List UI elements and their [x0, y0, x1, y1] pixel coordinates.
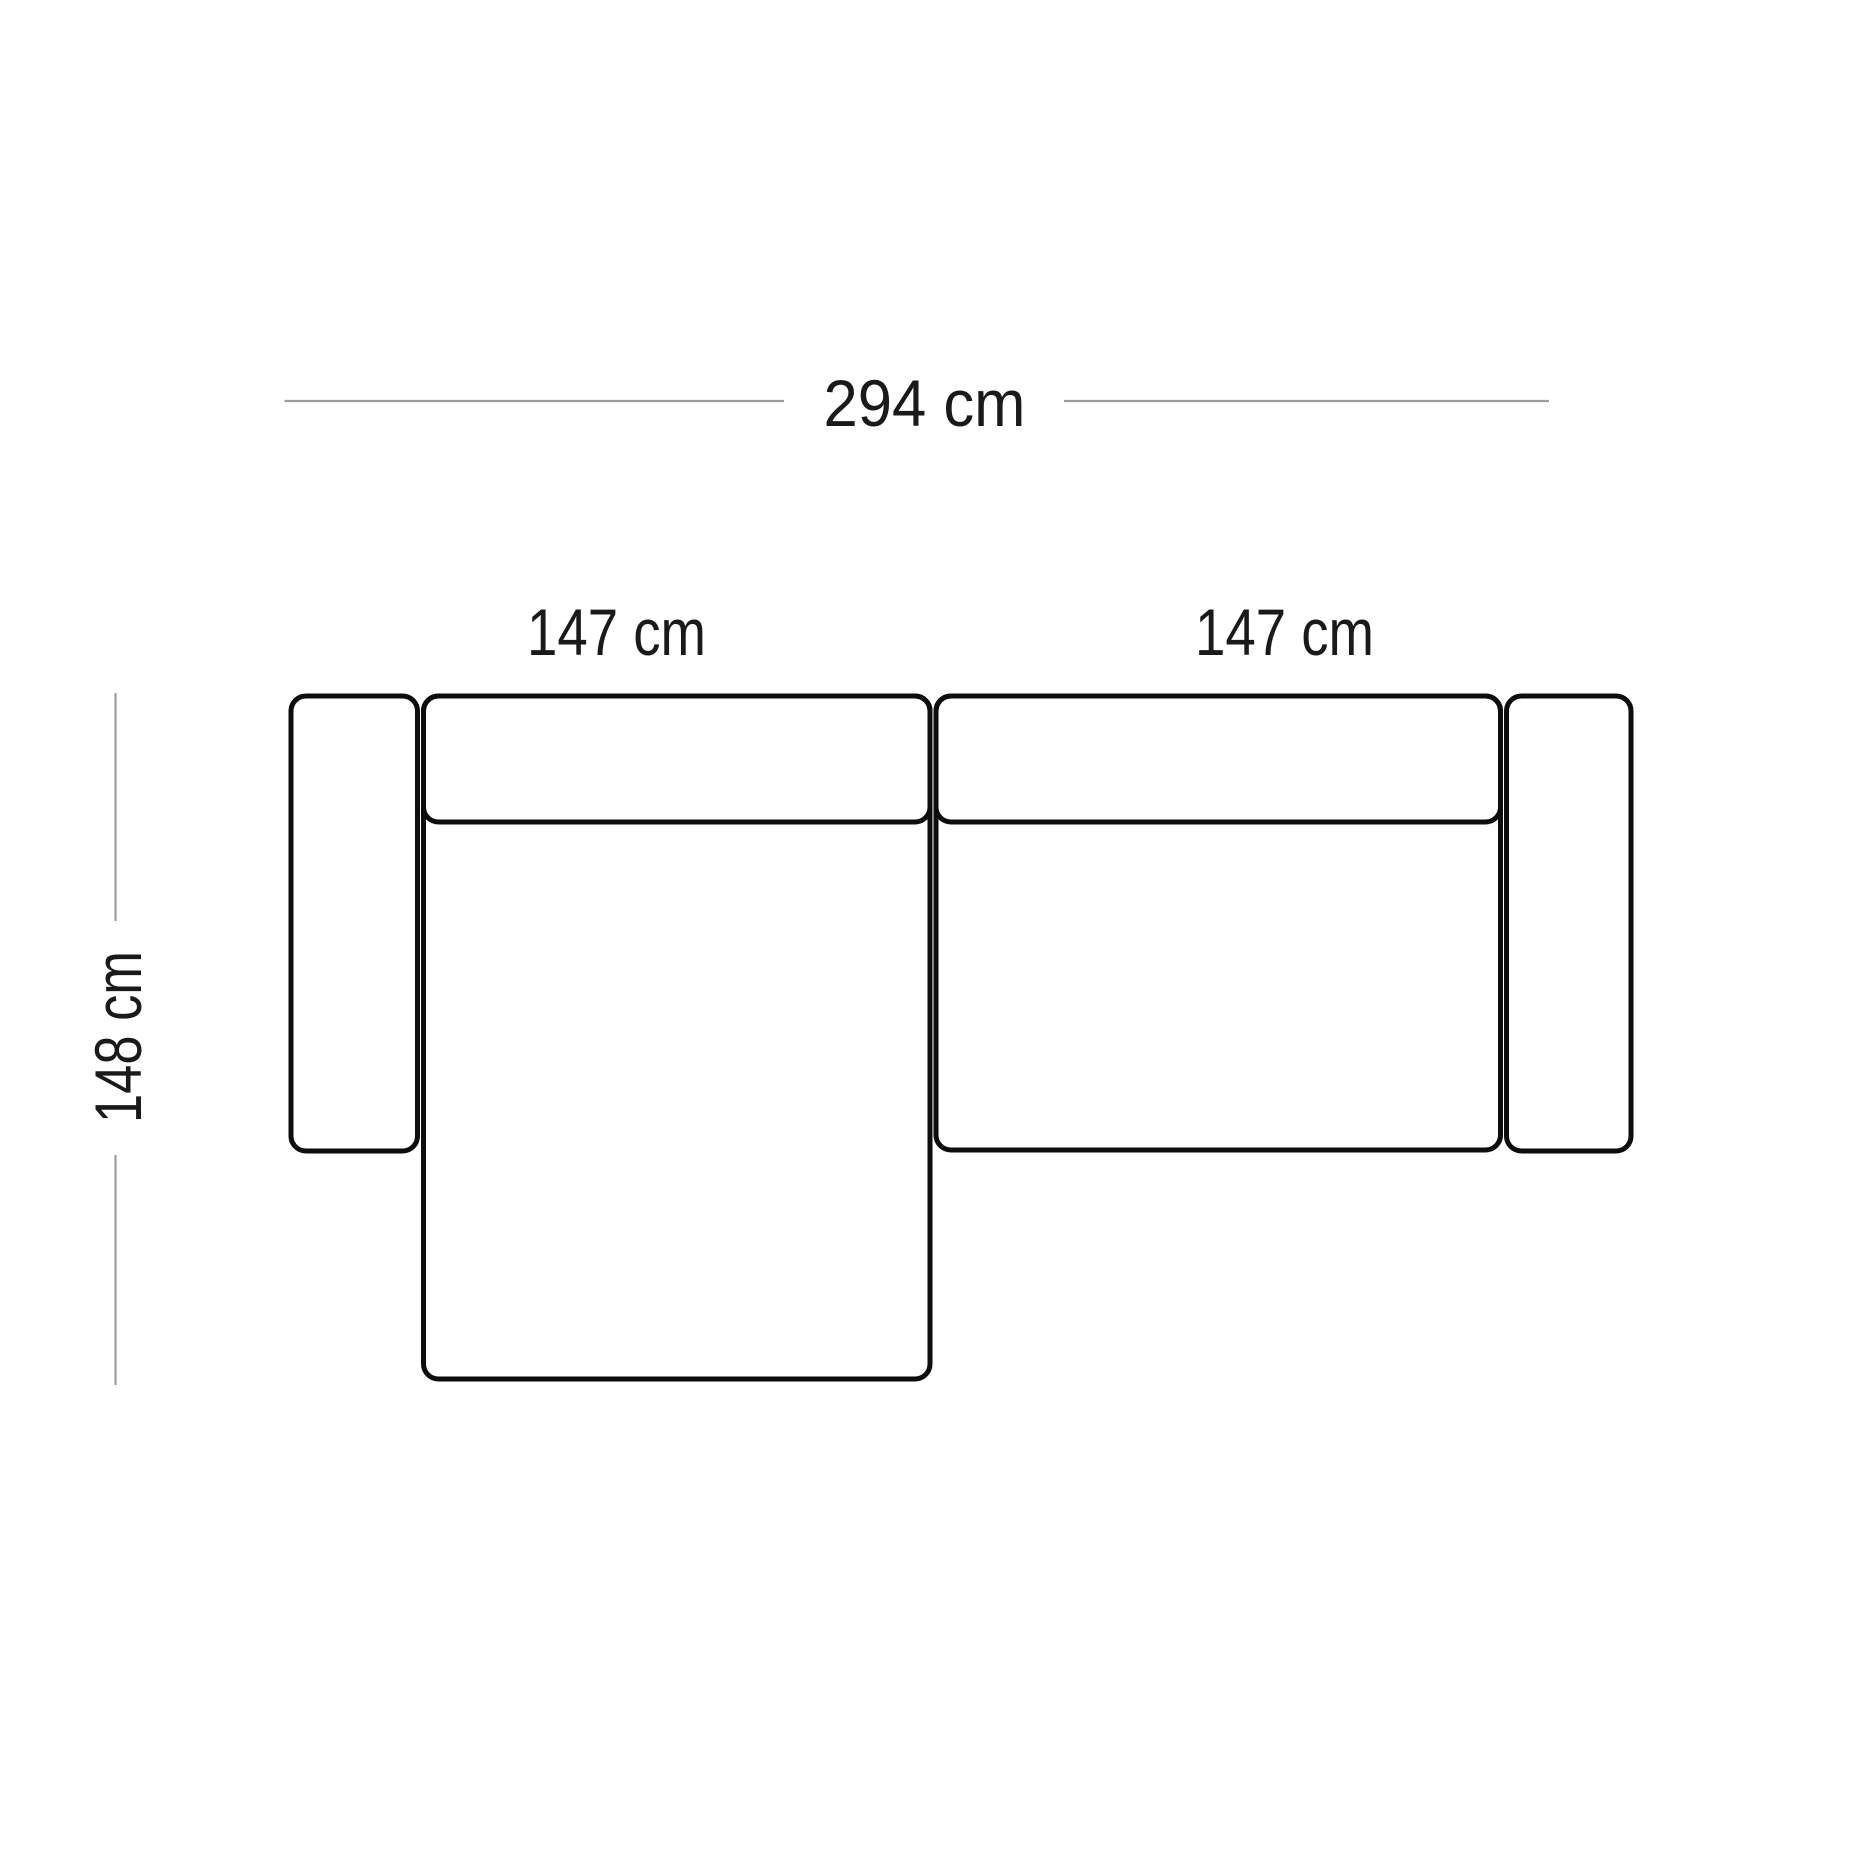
svg-text:148 cm: 148 cm [81, 951, 155, 1123]
svg-text:147 cm: 147 cm [1195, 595, 1374, 669]
svg-text:147 cm: 147 cm [527, 595, 706, 669]
svg-text:294 cm: 294 cm [824, 366, 1026, 440]
